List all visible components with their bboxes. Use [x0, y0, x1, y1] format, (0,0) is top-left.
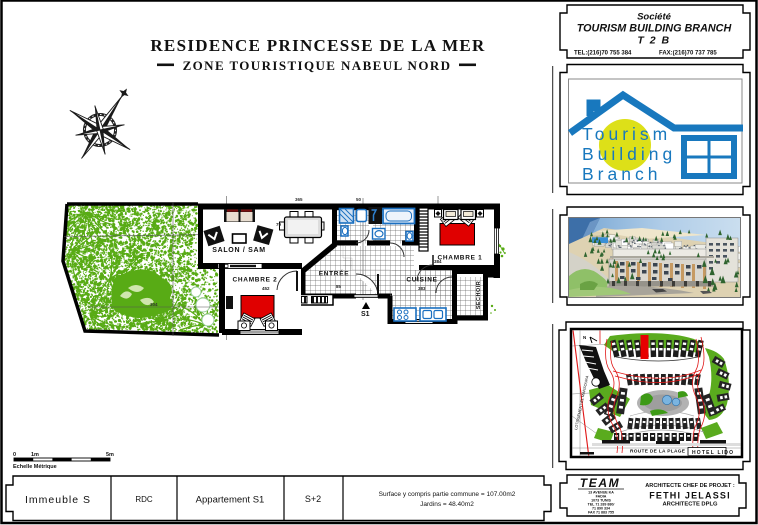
svg-text:RESIDENCE PRINCESSE DE LA MER: RESIDENCE PRINCESSE DE LA MER	[150, 36, 485, 55]
svg-text:ZONE TOURISTIQUE NABEUL NORD: ZONE TOURISTIQUE NABEUL NORD	[183, 58, 452, 73]
